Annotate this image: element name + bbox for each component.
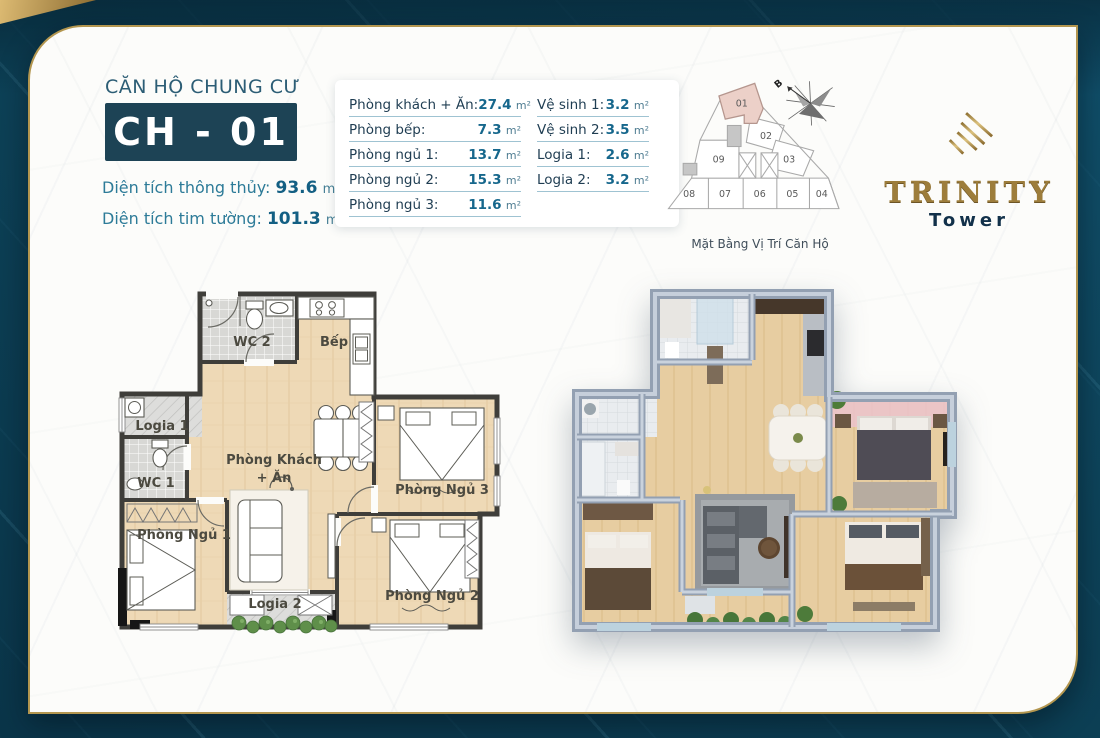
minimap-label-01: 01 — [736, 99, 748, 110]
stove-icon — [310, 299, 344, 317]
unit-code-text: CH - 01 — [113, 110, 289, 154]
area-row-living: Phòng khách + Ăn: 27.4 m² — [349, 92, 521, 117]
area-row-kitchen: Phòng bếp: 7.3 m² — [349, 117, 521, 142]
area-table-left-column: Phòng khách + Ăn: 27.4 m² Phòng bếp: 7.3… — [349, 92, 521, 217]
area-row-logia1: Logia 1: 2.6 m² — [537, 142, 649, 167]
room-label-logia1: Logia 1 — [135, 419, 188, 434]
area-table-panel: Phòng khách + Ăn: 27.4 m² Phòng bếp: 7.3… — [335, 80, 679, 227]
render-bed-bedroom1 — [583, 502, 653, 610]
compass-icon: B — [772, 78, 834, 126]
location-diagram-svg: 01 02 03 04 05 06 07 08 09 — [660, 77, 860, 235]
net-area-line: Diện tích thông thủy: 93.6 m² — [102, 178, 340, 198]
washing-machine-icon — [125, 398, 144, 417]
area-row-logia2: Logia 2: 3.2 m² — [537, 167, 649, 192]
page-background: CĂN HỘ CHUNG CƯ CH - 01 Diện tích thông … — [0, 0, 1100, 738]
render-living-set — [695, 486, 795, 592]
room-label-kitchen: Bếp — [320, 335, 348, 350]
floorplan-2d: WC 2 Bếp Logia 1 WC 1 Phòng Khách + Ăn P… — [102, 282, 522, 662]
room-label-logia2: Logia 2 — [248, 597, 301, 612]
room-label-living-2: + Ăn — [257, 470, 292, 486]
area-row-wc2: Vệ sinh 2: 3.5 m² — [537, 117, 649, 142]
gross-area-value: 101.3 — [267, 209, 321, 229]
minimap-label-08: 08 — [683, 189, 695, 200]
unit-code-badge: CH - 01 — [105, 103, 297, 161]
content-card: CĂN HỘ CHUNG CƯ CH - 01 Diện tích thông … — [28, 25, 1078, 714]
location-caption: Mặt Bằng Vị Trí Căn Hộ — [660, 237, 860, 251]
logo-building-icon — [911, 69, 1027, 169]
area-row-bedroom1: Phòng ngủ 1: 13.7 m² — [349, 142, 521, 167]
room-label-bedroom2: Phòng Ngủ 2 — [385, 589, 479, 604]
room-label-bedroom1: Phòng Ngủ 1 — [137, 528, 231, 543]
room-label-living-1: Phòng Khách — [226, 453, 322, 468]
floorplan-3d — [557, 282, 977, 662]
room-label-wc1: WC 1 — [137, 476, 174, 491]
area-row-wc1: Vệ sinh 1: 3.2 m² — [537, 92, 649, 117]
minimap-label-06: 06 — [754, 189, 766, 200]
area-row-bedroom3: Phòng ngủ 3: 11.6 m² — [349, 192, 521, 217]
logo-title: TRINITY — [878, 175, 1060, 209]
tv-console-icon — [328, 514, 335, 578]
minimap-label-03: 03 — [783, 154, 795, 165]
gross-area-label: Diện tích tim tường: — [102, 209, 262, 228]
compass-north-label: B — [772, 78, 785, 91]
logo-subtitle: Tower — [878, 210, 1060, 231]
minimap-label-04: 04 — [816, 189, 828, 200]
minimap-label-02: 02 — [760, 131, 772, 142]
location-diagram: 01 02 03 04 05 06 07 08 09 — [660, 77, 860, 255]
gross-area-line: Diện tích tim tường: 101.3 m² — [102, 209, 344, 229]
sofa-icon — [230, 477, 308, 590]
minimap-label-07: 07 — [719, 189, 731, 200]
area-row-bedroom2: Phòng ngủ 2: 15.3 m² — [349, 167, 521, 192]
page-title: CĂN HỘ CHUNG CƯ — [105, 76, 300, 98]
net-area-value: 93.6 — [276, 178, 318, 198]
room-label-bedroom3: Phòng Ngủ 3 — [395, 483, 489, 498]
net-area-label: Diện tích thông thủy: — [102, 178, 270, 197]
gold-corner-accent — [0, 0, 96, 24]
column-left — [118, 568, 127, 626]
minimap-label-09: 09 — [713, 154, 725, 165]
room-label-wc2: WC 2 — [233, 335, 270, 350]
area-table-right-column: Vệ sinh 1: 3.2 m² Vệ sinh 2: 3.5 m² Logi… — [537, 92, 649, 217]
brand-logo: TRINITY Tower — [878, 69, 1060, 231]
minimap-label-05: 05 — [786, 189, 798, 200]
